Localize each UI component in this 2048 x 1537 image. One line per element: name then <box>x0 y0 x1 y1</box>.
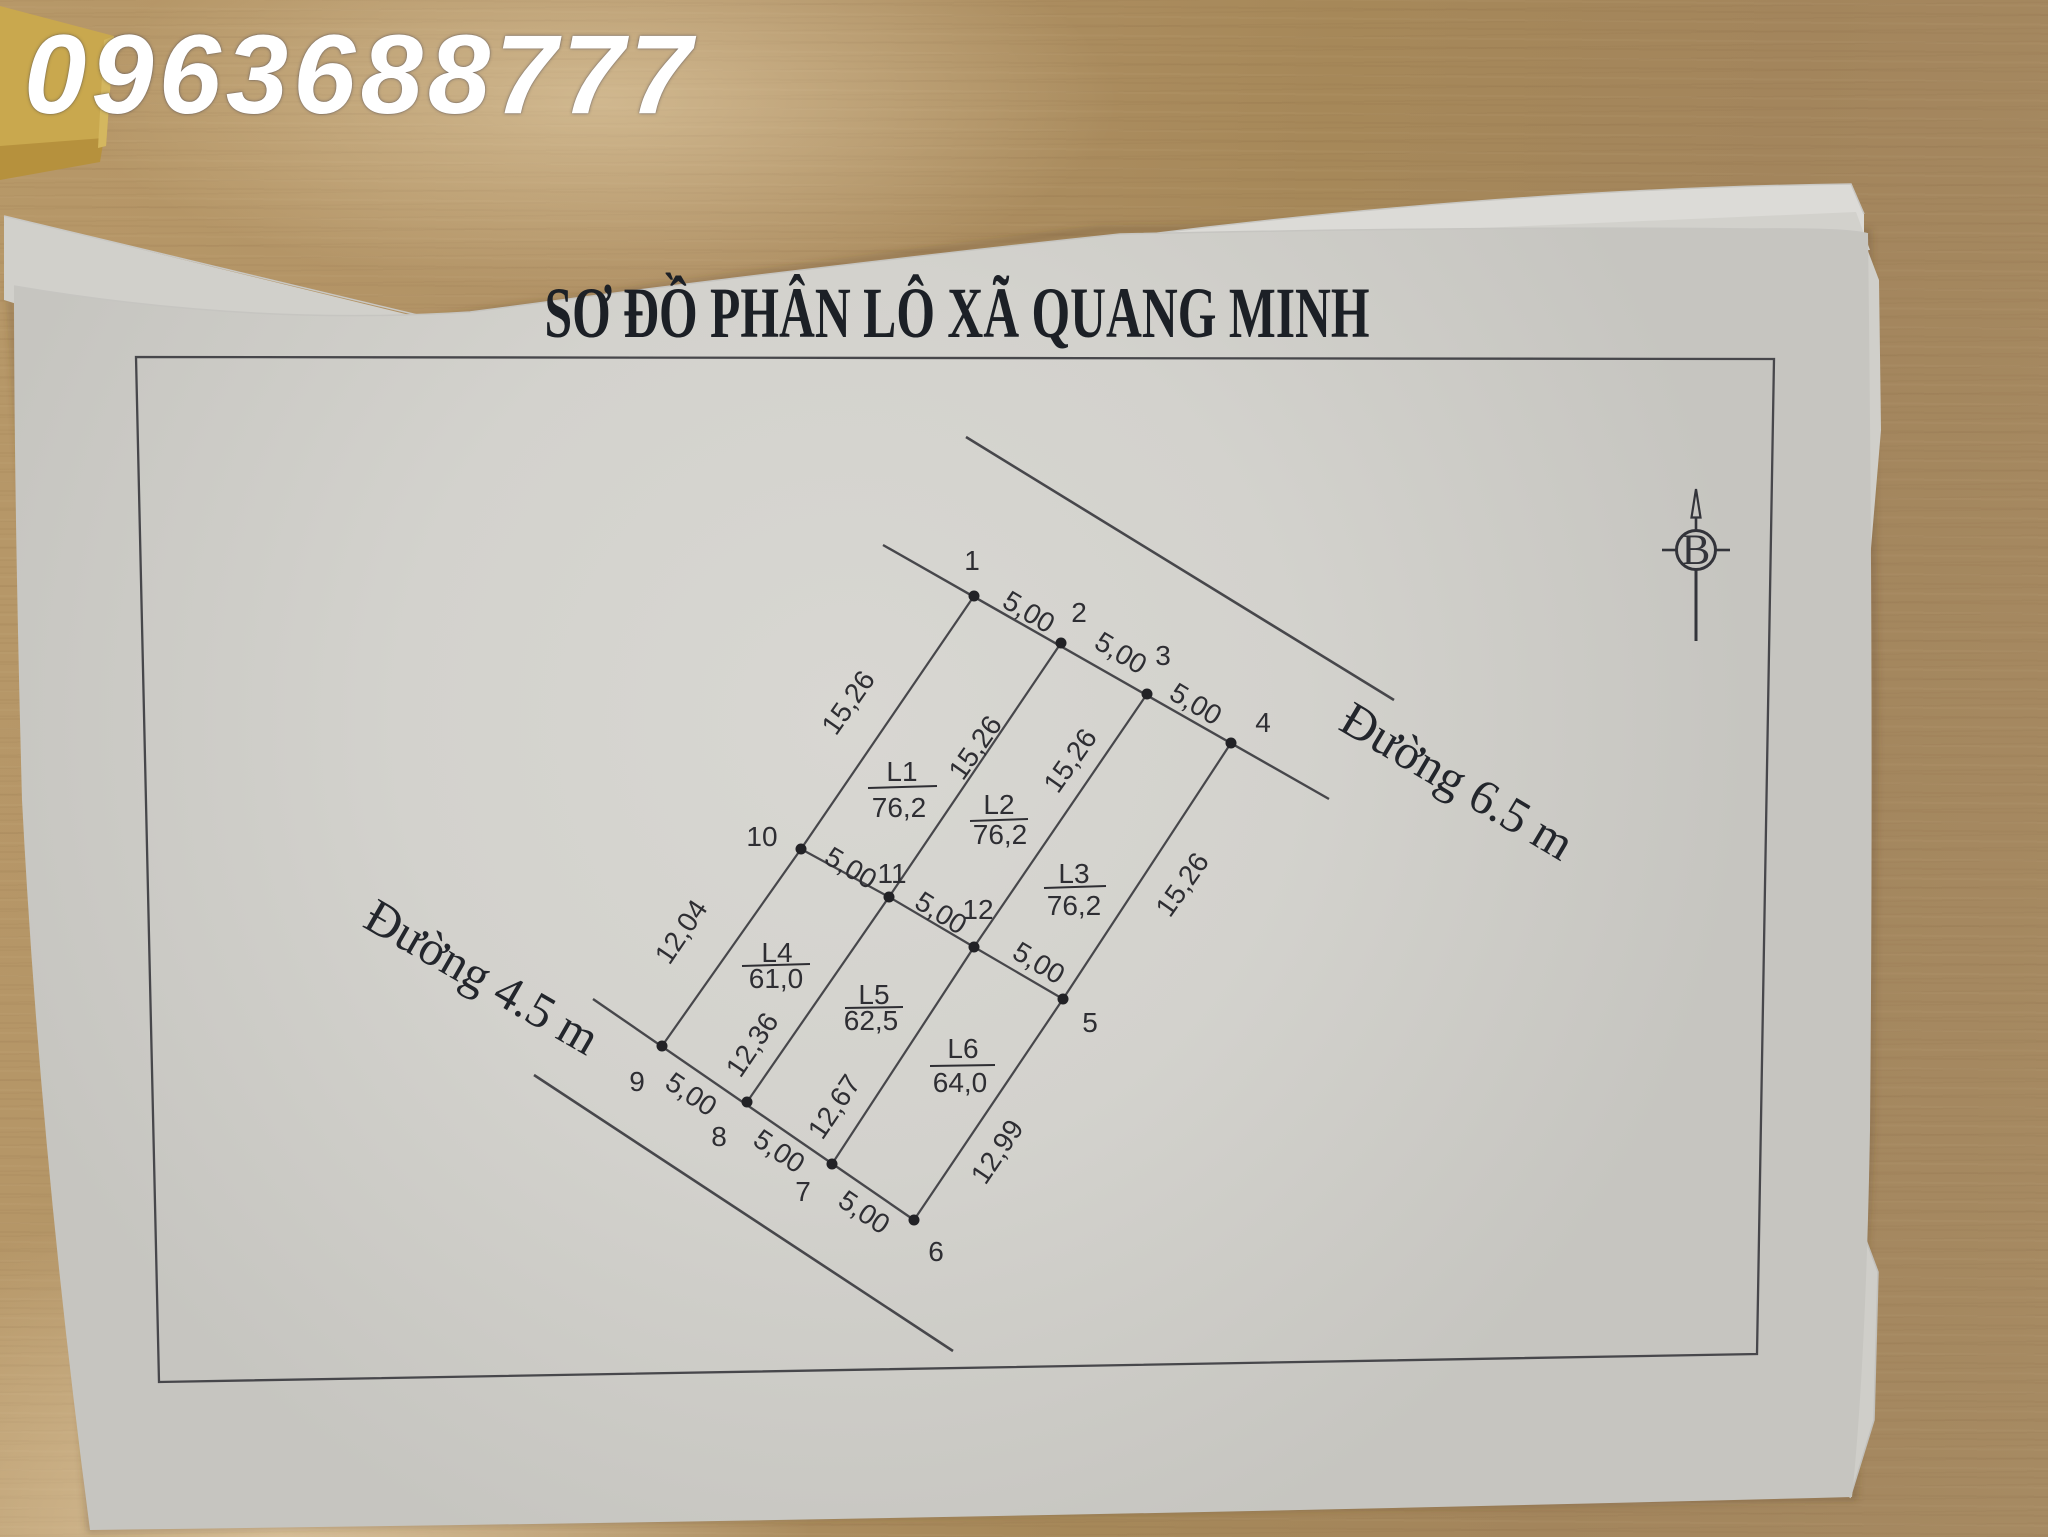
svg-text:1: 1 <box>964 545 980 576</box>
svg-text:L6: L6 <box>947 1033 978 1064</box>
svg-text:76,2: 76,2 <box>872 792 927 823</box>
svg-text:76,2: 76,2 <box>1047 890 1102 921</box>
svg-text:64,0: 64,0 <box>933 1067 988 1098</box>
svg-text:SƠ ĐỒ PHÂN LÔ XÃ QUANG MINH: SƠ ĐỒ PHÂN LÔ XÃ QUANG MINH <box>544 273 1369 353</box>
svg-text:B: B <box>1682 527 1711 574</box>
svg-text:7: 7 <box>795 1176 811 1207</box>
svg-text:11: 11 <box>877 858 906 889</box>
svg-text:6: 6 <box>928 1236 944 1267</box>
svg-text:L2: L2 <box>983 789 1014 820</box>
svg-text:5: 5 <box>1082 1007 1098 1038</box>
svg-text:4: 4 <box>1255 707 1271 738</box>
svg-text:76,2: 76,2 <box>973 819 1028 850</box>
svg-text:3: 3 <box>1155 640 1171 671</box>
svg-text:8: 8 <box>711 1121 727 1152</box>
svg-text:L3: L3 <box>1058 858 1089 889</box>
svg-text:L1: L1 <box>886 756 917 787</box>
svg-text:61,0: 61,0 <box>749 963 804 994</box>
svg-text:2: 2 <box>1071 597 1087 628</box>
svg-text:9: 9 <box>629 1066 645 1097</box>
svg-text:10: 10 <box>746 821 777 852</box>
svg-text:62,5: 62,5 <box>844 1005 899 1036</box>
